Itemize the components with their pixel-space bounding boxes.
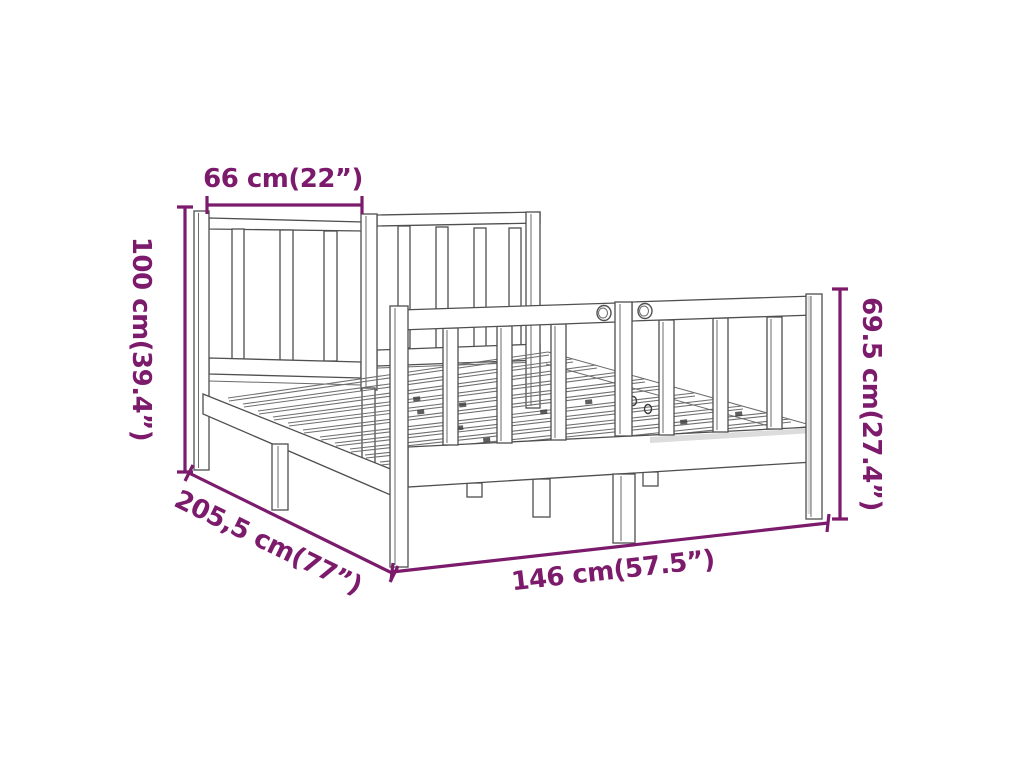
dimension-label-headboard-height: 100 cm(39.4”) — [126, 237, 156, 441]
diagram-canvas: 66 cm(22”) 100 cm(39.4”) 69.5 cm(27.4”) … — [0, 0, 1024, 768]
dimension-line-footboard-height — [832, 289, 848, 519]
footboard — [390, 294, 822, 567]
dimension-line-headboard-height — [177, 207, 193, 472]
dimension-label-headboard-panel-width: 66 cm(22”) — [203, 164, 363, 194]
dimension-label-footboard-height: 69.5 cm(27.4”) — [856, 297, 886, 511]
dimension-line-headboard-panel-width — [207, 196, 362, 214]
